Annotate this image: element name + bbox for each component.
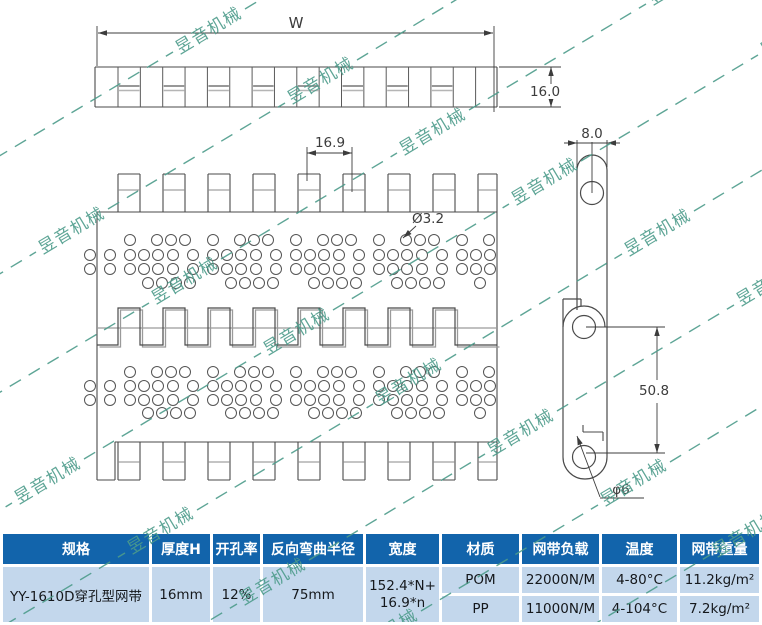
spec-table: 规格 厚度H 开孔率 反向弯曲半径 宽度 材质 网带负载 温度 网带重量 YY-…	[0, 531, 762, 625]
cell-width: 152.4*N+ 16.9*n	[366, 567, 439, 622]
table-row-pom: YY-1610D穿孔型网带 16mm 12% 75mm 152.4*N+ 16.…	[3, 567, 759, 593]
cell-temp-pp: 4-104°C	[602, 596, 677, 622]
cell-weight-pom: 11.2kg/m²	[680, 567, 759, 593]
width-formula-line2: 16.9*n	[368, 595, 437, 612]
cell-thickness: 16mm	[152, 567, 210, 622]
header-width: 宽度	[366, 534, 439, 564]
thickness-dim-label: 16.0	[530, 84, 560, 100]
belt-width-dim-label: W	[289, 14, 304, 32]
header-material: 材质	[442, 534, 519, 564]
perforation-diameter-label: Ø3.2	[412, 211, 444, 227]
cell-spec-name: YY-1610D穿孔型网带	[3, 567, 149, 622]
plate-width-dim-label: 8.0	[581, 126, 602, 142]
cell-bend-radius: 75mm	[263, 567, 363, 622]
header-open-rate: 开孔率	[213, 534, 260, 564]
header-load: 网带负载	[522, 534, 599, 564]
side-link-view	[563, 140, 665, 498]
header-weight: 网带重量	[680, 534, 759, 564]
header-thickness: 厚度H	[152, 534, 210, 564]
plan-view	[85, 147, 500, 480]
cell-weight-pp: 7.2kg/m²	[680, 596, 759, 622]
header-temperature: 温度	[602, 534, 677, 564]
cell-material-pom: POM	[442, 567, 519, 593]
header-spec: 规格	[3, 534, 149, 564]
cell-material-pp: PP	[442, 596, 519, 622]
width-formula-line1: 152.4*N+	[368, 578, 437, 595]
tooth-pitch-dim-label: 16.9	[315, 135, 345, 151]
link-pitch-dim-label: 50.8	[639, 383, 669, 399]
technical-drawing: W 16.0 16.9 Ø3.2 8.0 50.8 φ6	[0, 0, 762, 622]
cell-temp-pom: 4-80°C	[602, 567, 677, 593]
table-header-row: 规格 厚度H 开孔率 反向弯曲半径 宽度 材质 网带负载 温度 网带重量	[3, 534, 759, 564]
top-elevation-view	[95, 26, 561, 112]
hinge-hole-diameter-label: φ6	[612, 482, 630, 498]
cell-load-pom: 22000N/M	[522, 567, 599, 593]
header-bend-radius: 反向弯曲半径	[263, 534, 363, 564]
cell-open-rate: 12%	[213, 567, 260, 622]
cell-load-pp: 11000N/M	[522, 596, 599, 622]
